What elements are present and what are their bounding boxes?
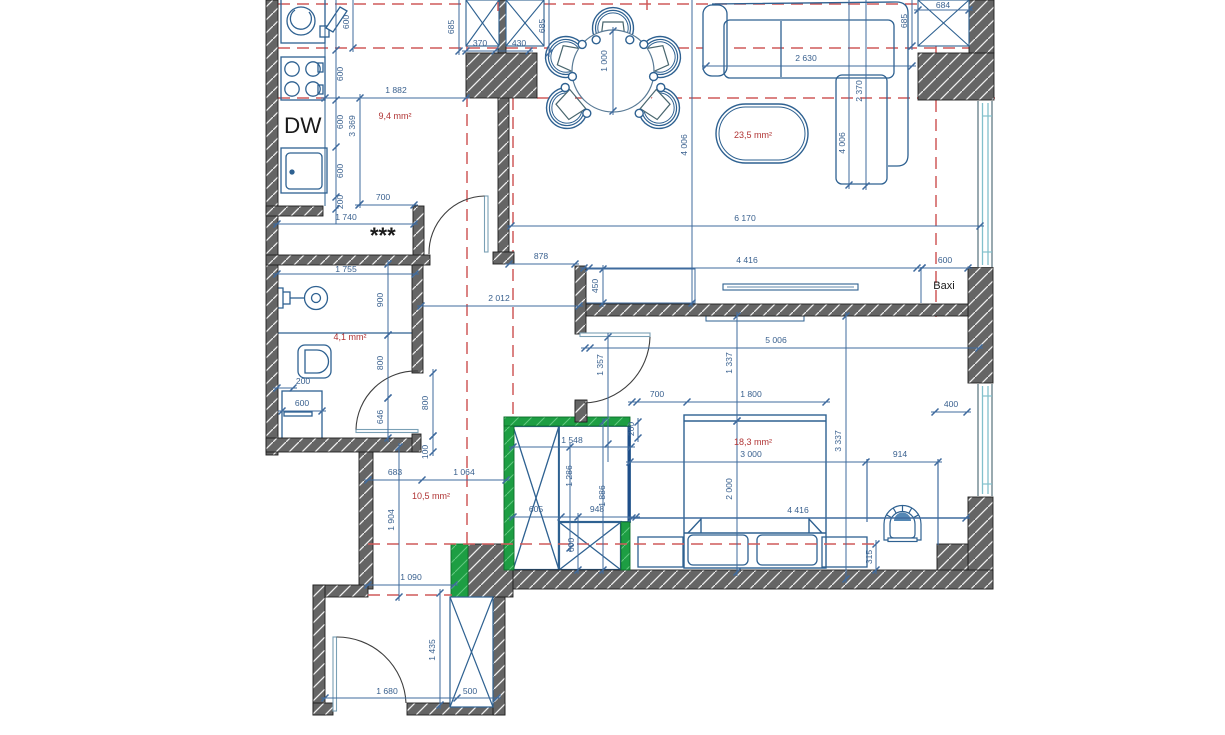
svg-text:200: 200	[335, 195, 345, 210]
svg-text:600: 600	[335, 115, 345, 130]
svg-text:9,4 mm²: 9,4 mm²	[378, 111, 411, 121]
svg-text:370: 370	[473, 38, 488, 48]
svg-text:DW: DW	[284, 113, 322, 138]
svg-text:2 370: 2 370	[854, 80, 864, 102]
svg-text:600: 600	[295, 398, 310, 408]
svg-text:700: 700	[376, 192, 391, 202]
svg-text:1 286: 1 286	[564, 465, 574, 487]
svg-text:2 012: 2 012	[488, 293, 510, 303]
svg-text:685: 685	[537, 19, 547, 34]
svg-text:4 006: 4 006	[837, 132, 847, 154]
svg-text:1 680: 1 680	[376, 686, 398, 696]
svg-text:100: 100	[420, 445, 430, 460]
svg-text:4 416: 4 416	[787, 505, 809, 515]
svg-text:3 000: 3 000	[740, 449, 762, 459]
svg-text:6 170: 6 170	[734, 213, 756, 223]
svg-text:700: 700	[650, 389, 665, 399]
svg-text:1 904: 1 904	[386, 509, 396, 531]
svg-text:646: 646	[375, 410, 385, 425]
svg-text:600: 600	[341, 15, 351, 30]
svg-text:1 000: 1 000	[599, 50, 609, 72]
svg-text:18,3 mm²: 18,3 mm²	[734, 437, 772, 447]
svg-text:***: ***	[370, 223, 396, 248]
svg-text:1 882: 1 882	[385, 85, 407, 95]
svg-text:914: 914	[893, 449, 908, 459]
svg-text:4 006: 4 006	[679, 134, 689, 156]
svg-text:3 369: 3 369	[347, 115, 357, 137]
svg-text:315: 315	[864, 550, 874, 565]
svg-text:1 090: 1 090	[400, 572, 422, 582]
svg-text:948: 948	[590, 504, 605, 514]
svg-text:450: 450	[590, 279, 600, 294]
svg-text:5 006: 5 006	[765, 335, 787, 345]
svg-text:878: 878	[534, 251, 549, 261]
svg-text:23,5 mm²: 23,5 mm²	[734, 130, 772, 140]
svg-text:2 630: 2 630	[795, 53, 817, 63]
svg-text:683: 683	[388, 467, 403, 477]
svg-text:605: 605	[529, 504, 544, 514]
svg-text:684: 684	[936, 0, 951, 10]
svg-text:600: 600	[566, 538, 576, 553]
svg-text:600: 600	[938, 255, 953, 265]
svg-text:2 000: 2 000	[724, 478, 734, 500]
svg-text:900: 900	[375, 293, 385, 308]
svg-text:600: 600	[335, 67, 345, 82]
svg-text:430: 430	[512, 38, 527, 48]
svg-text:1 755: 1 755	[335, 264, 357, 274]
svg-text:685: 685	[446, 20, 456, 35]
svg-text:800: 800	[420, 396, 430, 411]
svg-text:200: 200	[626, 422, 636, 437]
svg-text:4,1 mm²: 4,1 mm²	[333, 332, 366, 342]
svg-text:Baxi: Baxi	[933, 280, 954, 292]
svg-text:600: 600	[335, 164, 345, 179]
svg-text:800: 800	[375, 356, 385, 371]
svg-text:3 337: 3 337	[833, 430, 843, 452]
svg-text:685: 685	[899, 14, 909, 29]
svg-text:1 435: 1 435	[427, 639, 437, 661]
svg-text:1 357: 1 357	[595, 354, 605, 376]
svg-text:400: 400	[944, 399, 959, 409]
svg-text:10,5 mm²: 10,5 mm²	[412, 491, 450, 501]
svg-text:1 548: 1 548	[561, 435, 583, 445]
svg-text:1 740: 1 740	[335, 212, 357, 222]
svg-text:1 800: 1 800	[740, 389, 762, 399]
svg-text:500: 500	[463, 686, 478, 696]
svg-text:1 064: 1 064	[453, 467, 475, 477]
svg-text:200: 200	[296, 376, 311, 386]
svg-text:1 337: 1 337	[724, 352, 734, 374]
svg-text:4 416: 4 416	[736, 255, 758, 265]
